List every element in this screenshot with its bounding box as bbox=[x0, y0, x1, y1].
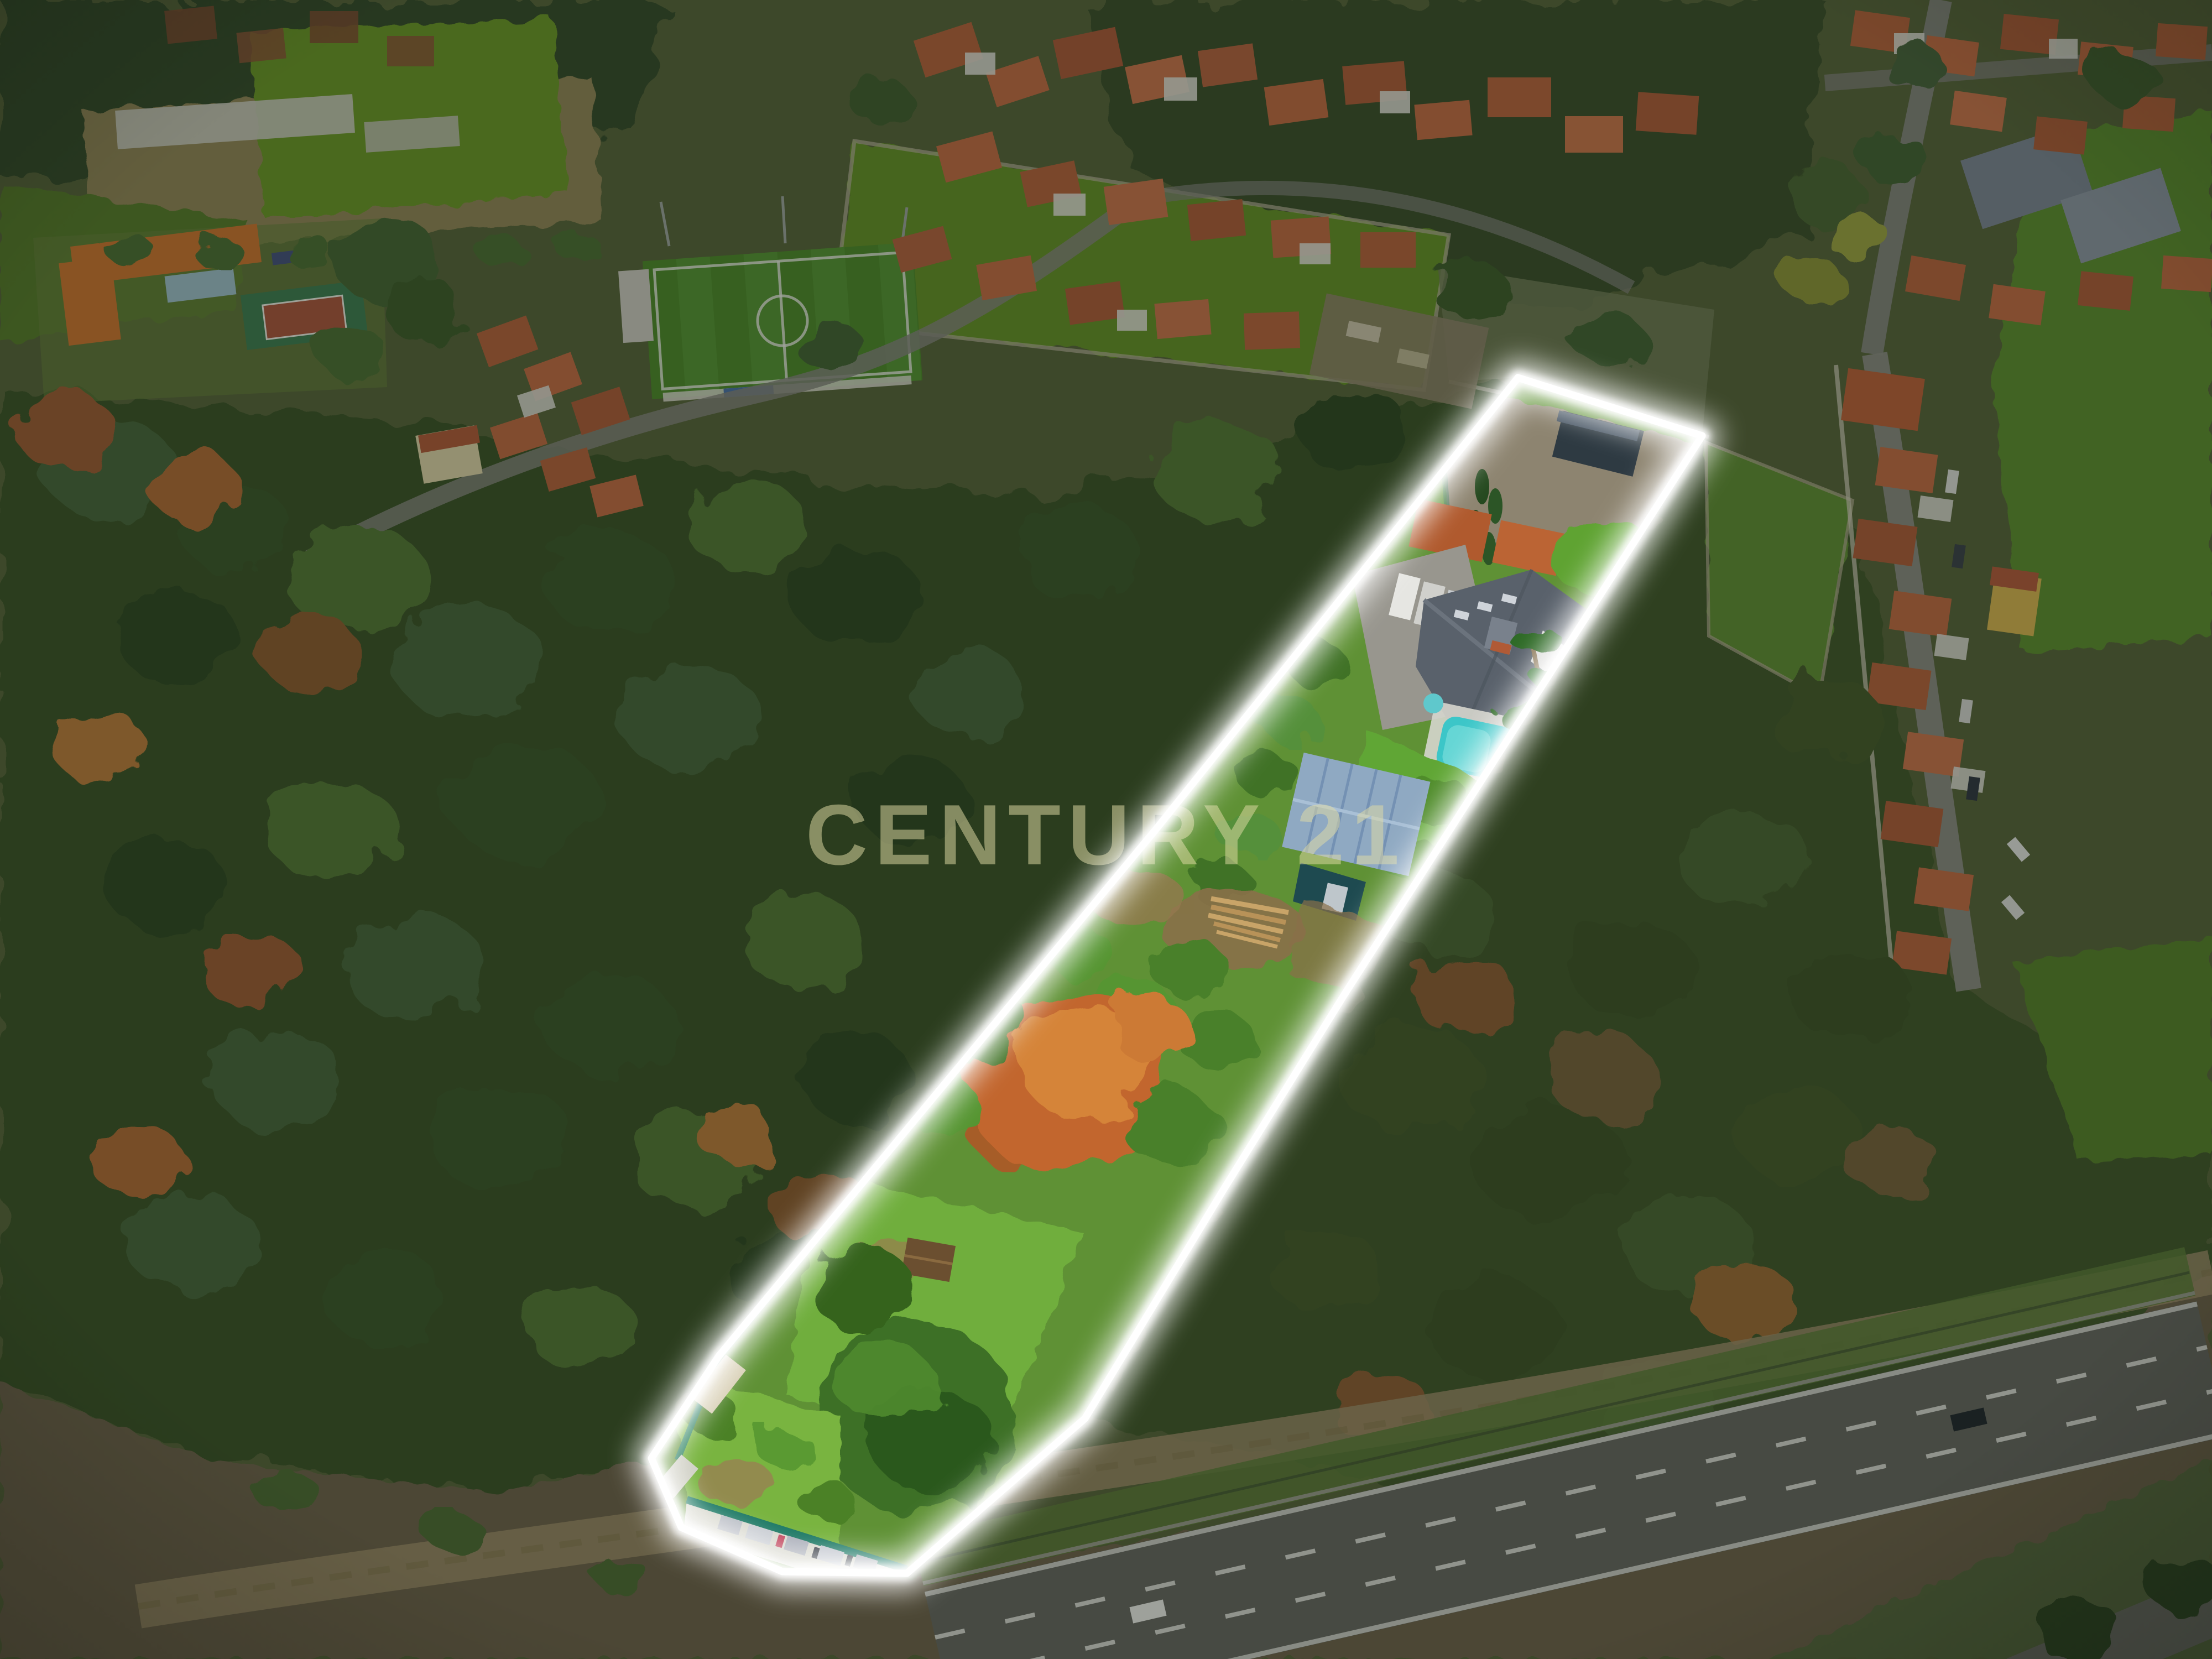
aerial-scene-svg: CENTURY 21 bbox=[0, 0, 2212, 1659]
aerial-photo: CENTURY 21 bbox=[0, 0, 2212, 1659]
